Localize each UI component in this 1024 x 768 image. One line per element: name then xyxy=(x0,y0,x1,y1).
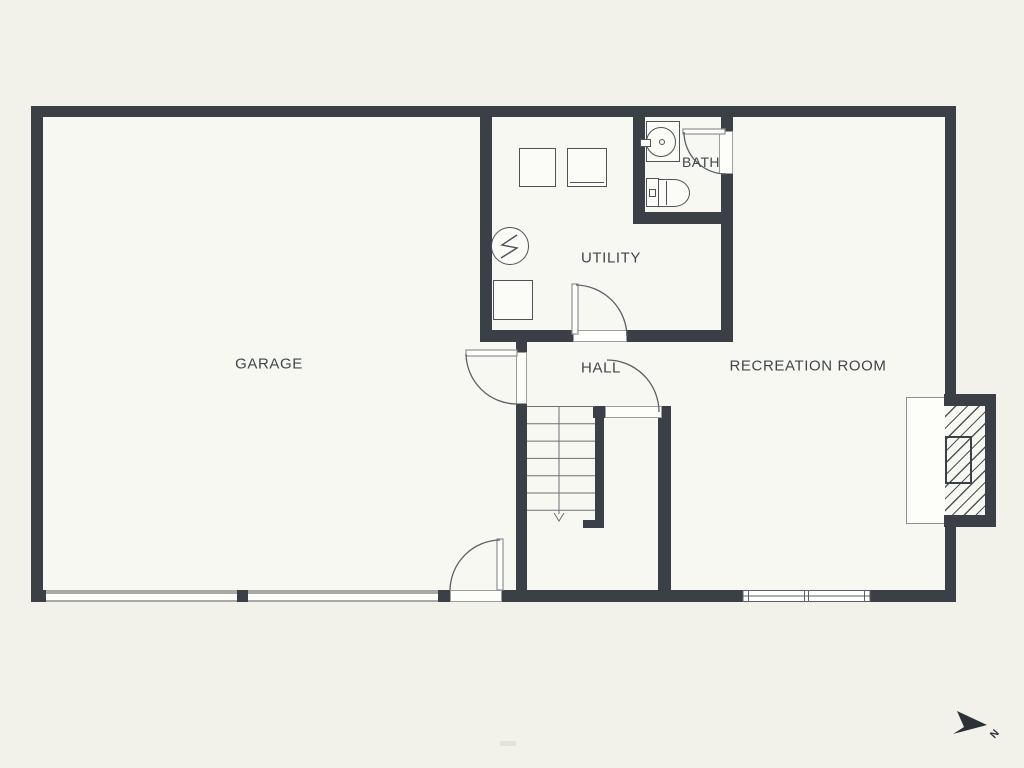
washer-icon xyxy=(519,148,556,187)
sink-faucet xyxy=(640,139,651,147)
utility-door-gap xyxy=(573,330,627,342)
garage-door-opening-right xyxy=(248,590,438,602)
storage-box-icon xyxy=(493,280,533,320)
water-heater-icon xyxy=(491,227,529,265)
wall-exterior-right xyxy=(945,106,956,602)
garage-hall-door-gap xyxy=(516,352,527,404)
north-label: N xyxy=(988,727,1002,741)
utility-label: UTILITY xyxy=(581,250,641,267)
fireplace-wall-bottom xyxy=(944,515,996,527)
garage-label: GARAGE xyxy=(235,356,303,373)
wall-bath-left xyxy=(633,117,645,224)
bath-label: BATH xyxy=(682,154,720,170)
toilet-flush-button xyxy=(649,189,656,197)
toilet-icon xyxy=(658,179,690,207)
wall-stair-right xyxy=(595,406,604,528)
wall-exterior-left xyxy=(31,106,43,602)
wall-recreation-left xyxy=(658,406,671,602)
hall-label: HALL xyxy=(581,360,621,377)
floor-plan: GARAGE UTILITY BATH HALL RECREATION ROOM… xyxy=(0,0,1024,768)
wall-stair-end-cap xyxy=(583,520,604,528)
sink-drain xyxy=(659,139,665,145)
faint-watermark xyxy=(500,741,516,746)
wall-exterior-top xyxy=(31,106,956,117)
recreation-room-label: RECREATION ROOM xyxy=(729,358,886,375)
fireplace-firebox xyxy=(945,436,972,484)
dryer-door-line xyxy=(570,182,604,183)
north-arrow-icon xyxy=(953,711,987,734)
bath-door-gap xyxy=(719,131,733,174)
fireplace-wall-right xyxy=(984,394,996,527)
toilet-seat-line xyxy=(666,181,667,205)
garage-entry-door-gap xyxy=(450,590,502,602)
floor-interior xyxy=(43,117,945,590)
garage-door-opening-left xyxy=(46,590,237,602)
wall-bath-bottom xyxy=(633,212,733,224)
wall-garage-utility xyxy=(480,106,492,342)
corridor-door-gap xyxy=(605,406,662,418)
dryer-icon xyxy=(567,148,607,187)
